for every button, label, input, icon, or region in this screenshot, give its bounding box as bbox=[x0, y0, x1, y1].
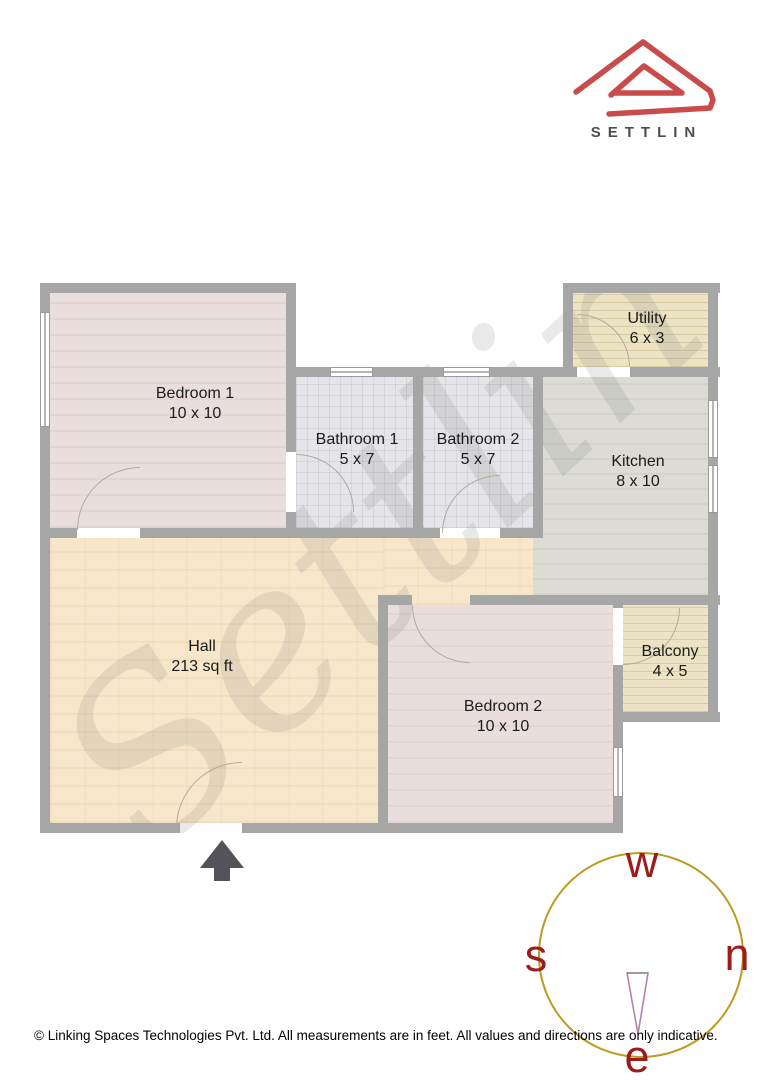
floor-plan-page: SETTLIN Settlin bbox=[0, 0, 763, 1080]
wall bbox=[378, 595, 388, 833]
window bbox=[613, 747, 623, 797]
room-label-bedroom1: Bedroom 1 10 x 10 bbox=[156, 384, 234, 424]
compass-south-label: s bbox=[525, 930, 548, 982]
room-label-bathroom1: Bathroom 1 5 x 7 bbox=[316, 430, 399, 470]
room-label-utility: Utility 6 x 3 bbox=[627, 309, 666, 349]
room-label-bathroom2: Bathroom 2 5 x 7 bbox=[437, 430, 520, 470]
room-label-bedroom2: Bedroom 2 10 x 10 bbox=[464, 697, 542, 737]
compass-north-label: n bbox=[724, 929, 749, 981]
window bbox=[708, 465, 718, 513]
wall bbox=[470, 595, 720, 605]
wall bbox=[613, 595, 623, 608]
wall bbox=[378, 595, 412, 605]
wall bbox=[242, 823, 623, 833]
wall bbox=[413, 377, 423, 538]
compass-west-label: w bbox=[626, 836, 659, 888]
brand-logo: SETTLIN bbox=[568, 34, 718, 141]
entrance-arrow-icon bbox=[198, 838, 246, 882]
floor-plan: Settlin bbox=[40, 283, 720, 833]
wall bbox=[533, 377, 543, 538]
settlin-house-icon bbox=[571, 34, 716, 120]
window bbox=[40, 312, 50, 427]
room-label-kitchen: Kitchen 8 x 10 bbox=[611, 452, 664, 492]
window bbox=[443, 367, 490, 377]
room-label-balcony: Balcony 4 x 5 bbox=[642, 642, 699, 682]
wall bbox=[563, 283, 720, 293]
wall bbox=[286, 283, 296, 452]
window bbox=[330, 367, 373, 377]
room-label-hall: Hall 213 sq ft bbox=[171, 637, 232, 677]
wall bbox=[563, 283, 573, 377]
wall bbox=[613, 712, 720, 722]
wall bbox=[40, 823, 180, 833]
wall bbox=[40, 528, 77, 538]
wall bbox=[40, 283, 296, 293]
wall bbox=[630, 367, 720, 377]
copyright-disclaimer: © Linking Spaces Technologies Pvt. Ltd. … bbox=[34, 1028, 734, 1043]
wall bbox=[500, 528, 543, 538]
wall bbox=[140, 528, 440, 538]
window bbox=[708, 400, 718, 458]
brand-name: SETTLIN bbox=[568, 124, 718, 141]
